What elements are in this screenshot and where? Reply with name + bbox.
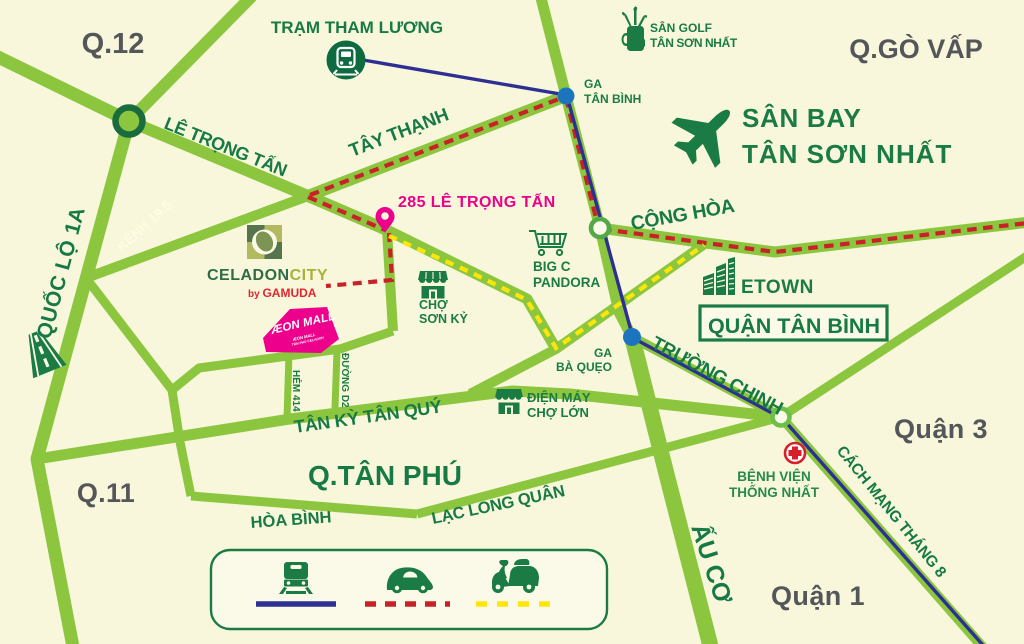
svg-text:TRẠM THAM LƯƠNG: TRẠM THAM LƯƠNG — [271, 18, 443, 37]
svg-text:BIG C: BIG C — [533, 259, 571, 274]
svg-text:TÂN SƠN NHẤT: TÂN SƠN NHẤT — [742, 139, 952, 169]
svg-text:SÂN BAY: SÂN BAY — [742, 103, 862, 133]
svg-text:CHỢ LỚN: CHỢ LỚN — [527, 405, 589, 420]
svg-text:SƠN KỶ: SƠN KỶ — [419, 311, 469, 326]
svg-text:TÂN BÌNH: TÂN BÌNH — [584, 91, 641, 106]
svg-text:by GAMUDA: by GAMUDA — [248, 286, 317, 300]
svg-text:CHỢ: CHỢ — [419, 298, 448, 312]
svg-text:BÀ QUẸO: BÀ QUẸO — [556, 359, 612, 374]
svg-text:Q.11: Q.11 — [77, 478, 135, 508]
svg-text:QUẬN TÂN BÌNH: QUẬN TÂN BÌNH — [708, 313, 880, 338]
svg-text:ĐIỆN MÁY: ĐIỆN MÁY — [527, 390, 591, 405]
svg-text:SÂN GOLF: SÂN GOLF — [650, 20, 712, 35]
svg-text:ĐƯỜNG D2: ĐƯỜNG D2 — [339, 353, 352, 408]
svg-text:CELADONCITY: CELADONCITY — [207, 267, 328, 284]
svg-text:Q.GÒ VẤP: Q.GÒ VẤP — [849, 33, 983, 64]
svg-text:GA: GA — [594, 346, 612, 360]
svg-text:HẺM 414: HẺM 414 — [290, 370, 303, 412]
svg-text:Quận 3: Quận 3 — [894, 414, 988, 444]
svg-text:Q.12: Q.12 — [82, 28, 145, 60]
svg-text:PANDORA: PANDORA — [533, 275, 601, 290]
svg-text:THỐNG NHẤT: THỐNG NHẤT — [729, 485, 820, 500]
svg-text:Q.TÂN PHÚ: Q.TÂN PHÚ — [308, 460, 462, 491]
svg-text:BỆNH VIỆN: BỆNH VIỆN — [737, 469, 811, 484]
svg-text:285 LÊ TRỌNG TẤN: 285 LÊ TRỌNG TẤN — [398, 192, 556, 211]
svg-text:TÂN SƠN NHẤT: TÂN SƠN NHẤT — [650, 35, 738, 50]
svg-text:GA: GA — [584, 77, 602, 91]
svg-text:Quận 1: Quận 1 — [771, 581, 865, 611]
svg-text:ETOWN: ETOWN — [741, 277, 814, 298]
